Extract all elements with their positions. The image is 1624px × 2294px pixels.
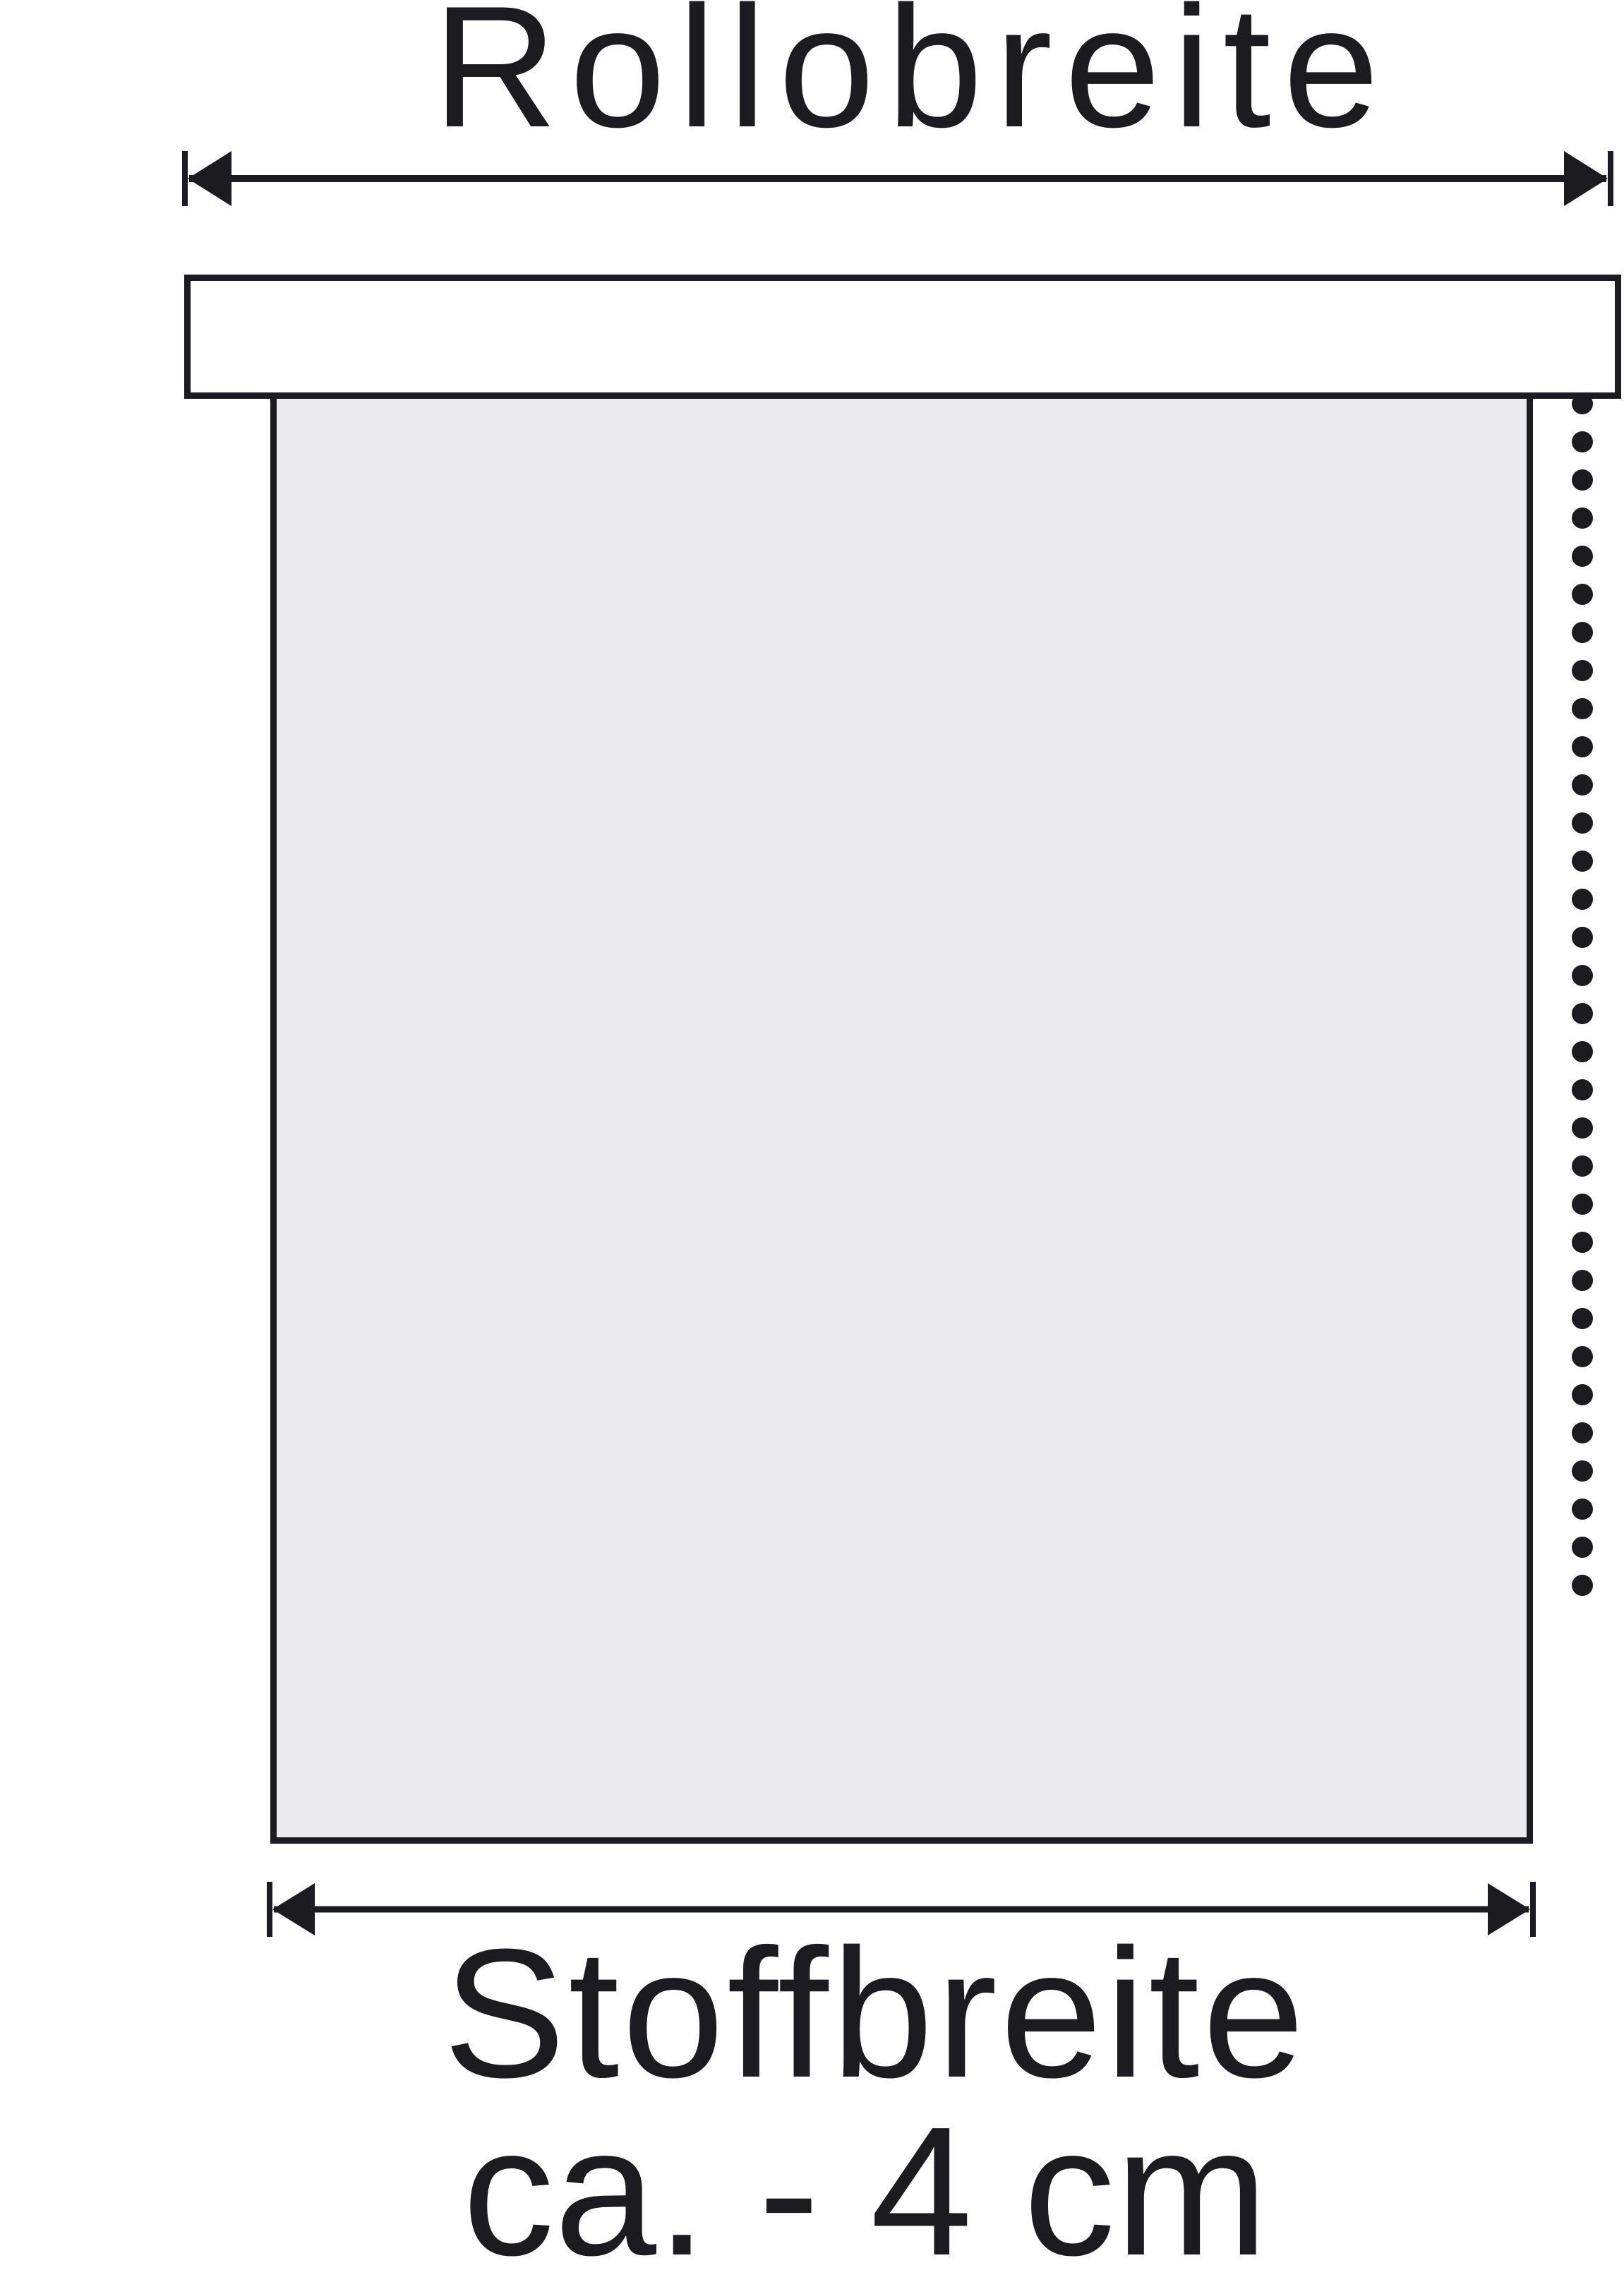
arrowhead-left-icon	[188, 151, 231, 206]
dimension-end-tick-right	[1608, 151, 1613, 206]
chain-bead	[1572, 508, 1593, 529]
bead-chain-dots	[1572, 393, 1593, 1596]
fabric-width-label: Stoffbreite	[443, 1922, 1307, 2106]
chain-bead	[1572, 698, 1593, 719]
chain-bead	[1572, 1117, 1593, 1139]
chain-bead	[1572, 1041, 1593, 1062]
chain-bead	[1572, 1155, 1593, 1177]
dimension-end-tick-left	[182, 151, 188, 206]
arrowhead-right-icon	[1488, 1883, 1530, 1935]
chain-bead	[1572, 889, 1593, 910]
dimension-end-tick-left	[267, 1882, 272, 1937]
chain-bead	[1572, 622, 1593, 643]
chain-bead	[1572, 1384, 1593, 1405]
chain-bead	[1572, 1003, 1593, 1024]
fabric-panel	[270, 392, 1533, 1844]
chain-bead	[1572, 660, 1593, 681]
chain-bead	[1572, 1194, 1593, 1215]
arrowhead-left-icon	[272, 1883, 315, 1935]
chain-bead	[1572, 774, 1593, 795]
arrowhead-right-icon	[1564, 151, 1608, 206]
chain-bead	[1572, 965, 1593, 986]
dimension-end-tick-right	[1530, 1882, 1536, 1937]
chain-bead	[1572, 1422, 1593, 1443]
chain-bead	[1572, 431, 1593, 452]
chain-bead	[1572, 584, 1593, 605]
chain-bead	[1572, 927, 1593, 948]
chain-bead	[1572, 851, 1593, 872]
chain-bead	[1572, 1079, 1593, 1100]
chain-bead	[1572, 1537, 1593, 1558]
chain-bead	[1572, 1346, 1593, 1367]
chain-bead	[1572, 546, 1593, 567]
chain-bead	[1572, 1460, 1593, 1482]
chain-bead	[1572, 1232, 1593, 1253]
chain-bead	[1572, 812, 1593, 834]
chain-bead	[1572, 1575, 1593, 1596]
rollo-width-double-arrow-icon	[182, 147, 1613, 210]
fabric-width-note: ca. - 4 cm	[462, 2100, 1268, 2283]
cassette-bar	[184, 275, 1621, 399]
chain-bead	[1572, 736, 1593, 757]
chain-bead	[1572, 1270, 1593, 1291]
rollo-width-label: Rollobreite	[433, 0, 1391, 153]
chain-bead	[1572, 1308, 1593, 1329]
chain-bead	[1572, 1499, 1593, 1520]
chain-bead	[1572, 393, 1593, 414]
chain-bead	[1572, 469, 1593, 491]
roller-blind-dimension-diagram: { "diagram": { "title": "Rollobreite", "…	[0, 0, 1624, 2259]
